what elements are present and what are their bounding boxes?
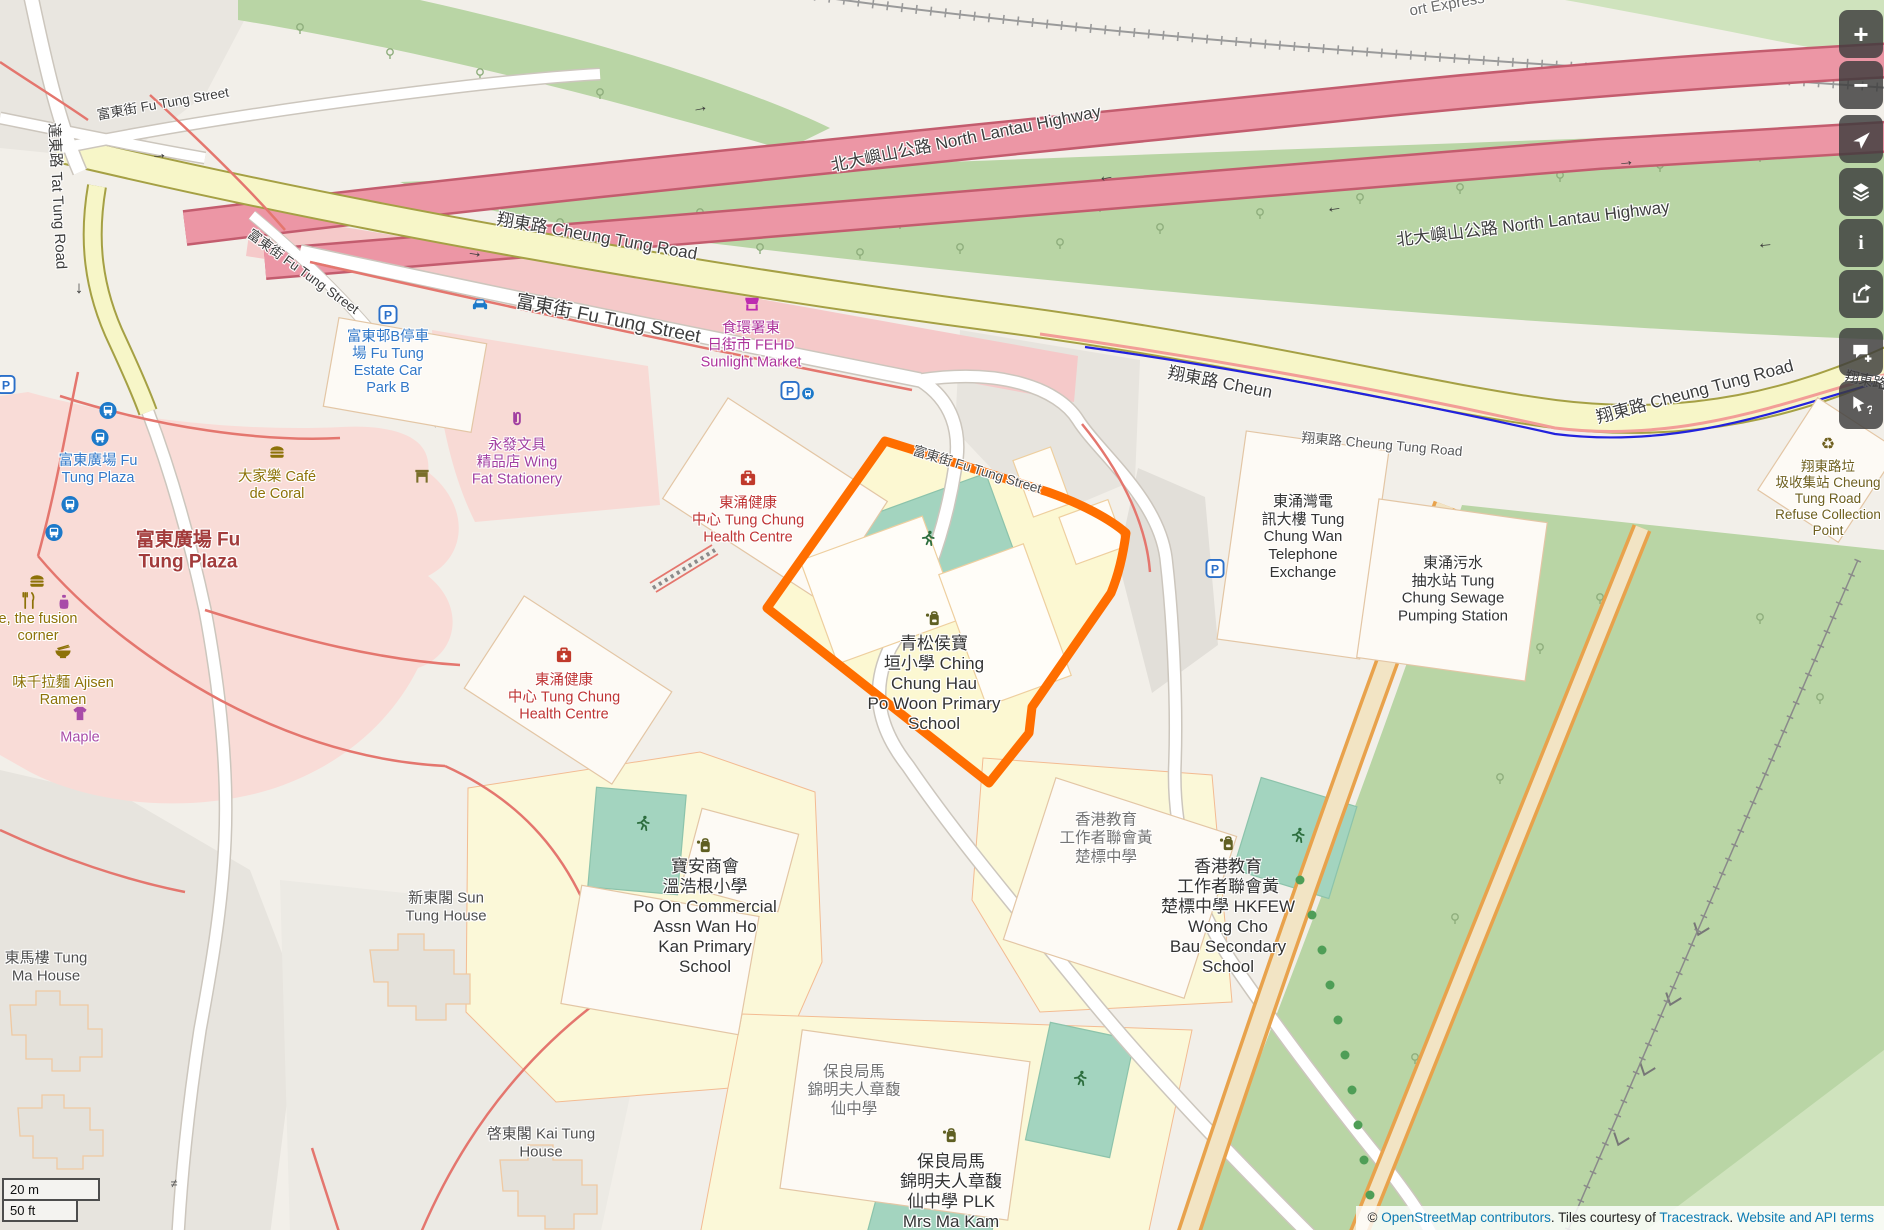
info-button[interactable]: i <box>1839 219 1883 267</box>
minus-icon: − <box>1853 72 1868 98</box>
add-note-icon <box>1850 341 1872 363</box>
locate-arrow-icon <box>1850 128 1872 150</box>
tracestrack-link[interactable]: Tracestrack <box>1659 1210 1729 1225</box>
svg-text:?: ? <box>1867 403 1873 416</box>
period-text: . <box>1729 1210 1737 1225</box>
query-cursor-icon: ? <box>1850 394 1872 416</box>
zoom-in-button[interactable]: + <box>1839 10 1883 58</box>
tiles-courtesy-text: . Tiles courtesy of <box>1551 1210 1660 1225</box>
info-icon: i <box>1858 233 1864 253</box>
locate-button[interactable] <box>1839 115 1883 163</box>
osm-contributors-link[interactable]: OpenStreetMap contributors <box>1381 1210 1551 1225</box>
share-icon <box>1850 283 1872 305</box>
share-button[interactable] <box>1839 270 1883 318</box>
terms-link[interactable]: Website and API terms <box>1737 1210 1874 1225</box>
attribution-bar: © OpenStreetMap contributors. Tiles cour… <box>1356 1206 1884 1230</box>
map-viewport[interactable]: PPPP♻≠ →↓→→→←←← 富東街 Fu Tung Street達東路 Ta… <box>0 0 1884 1230</box>
plus-icon: + <box>1853 21 1868 47</box>
layers-icon <box>1850 181 1872 203</box>
scale-metric: 20 m <box>2 1178 100 1201</box>
scale-imperial: 50 ft <box>2 1201 78 1222</box>
query-features-button[interactable]: ? <box>1839 381 1883 429</box>
layers-button[interactable] <box>1839 168 1883 216</box>
map-tiles <box>0 0 1884 1230</box>
add-note-button[interactable] <box>1839 328 1883 376</box>
zoom-out-button[interactable]: − <box>1839 61 1883 109</box>
copyright-text: © <box>1368 1210 1382 1225</box>
scale-bar: 20 m 50 ft <box>2 1178 100 1222</box>
